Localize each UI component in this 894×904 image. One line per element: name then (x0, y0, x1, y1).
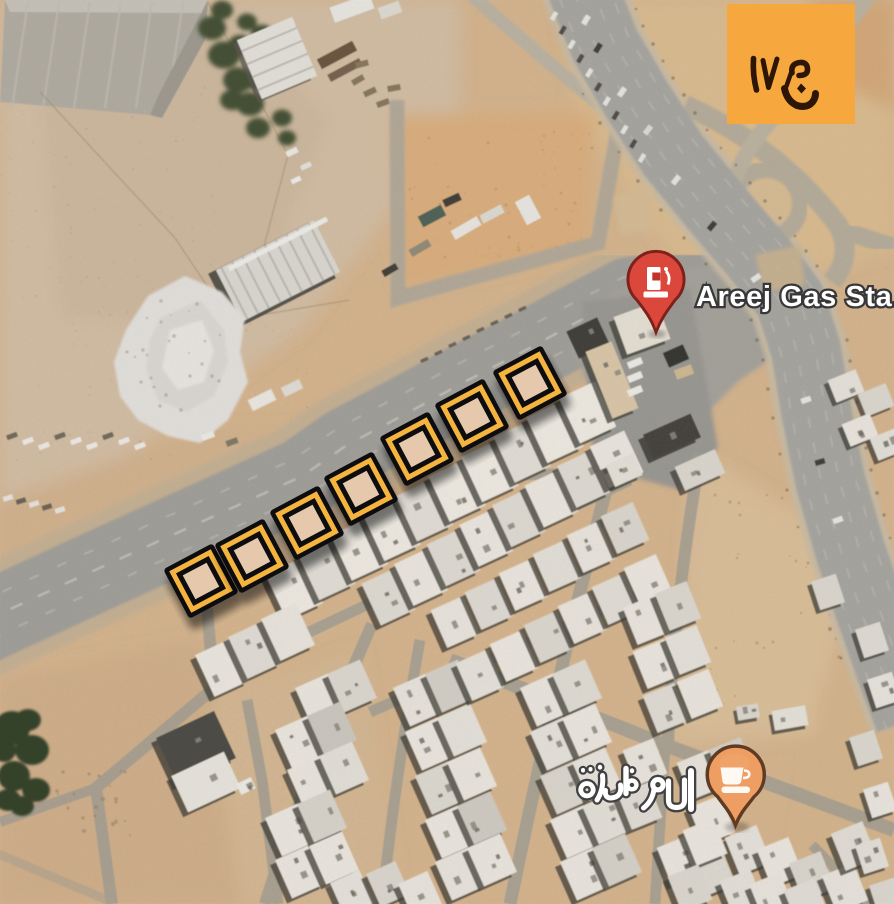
svg-text:Areej Gas Sta: Areej Gas Sta (696, 281, 893, 313)
